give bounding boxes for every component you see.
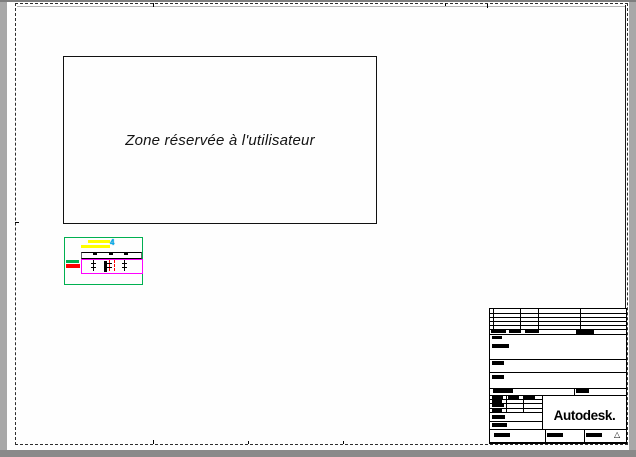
text-placeholder-bar <box>508 396 519 399</box>
autodesk-logo: Autodesk. <box>554 408 616 423</box>
fold-mark <box>153 440 154 444</box>
fold-mark <box>15 222 19 223</box>
grid-line <box>538 309 539 329</box>
grid-line <box>490 412 542 413</box>
revision-triangle-icon: △ <box>614 430 620 440</box>
text-placeholder-bar <box>492 415 505 419</box>
text-placeholder-bar <box>525 330 539 333</box>
text-placeholder-bar <box>494 433 510 437</box>
text-placeholder-bar <box>492 423 507 427</box>
section-line <box>490 372 626 373</box>
beam-symbol <box>81 252 142 259</box>
section-line <box>490 334 626 335</box>
beam-support-square <box>124 252 128 255</box>
center-bar <box>104 261 107 272</box>
fold-mark <box>153 3 154 7</box>
cell-divider <box>574 388 575 395</box>
autodesk-logo-cell: Autodesk. <box>543 395 626 429</box>
fold-mark <box>445 3 446 6</box>
text-placeholder-bar <box>493 389 513 393</box>
beam-support-square <box>93 252 97 255</box>
section-line <box>490 359 626 360</box>
cad-layout-view: Zone réservée à l'utilisateur 4 <box>0 0 636 457</box>
grid-line <box>493 309 494 329</box>
beam-support-square <box>109 252 113 255</box>
text-placeholder-bar <box>492 396 503 399</box>
text-placeholder-bar <box>491 330 506 333</box>
text-placeholder-bar <box>524 396 535 399</box>
grid-line <box>490 313 626 314</box>
cell-divider <box>584 429 585 442</box>
user-zone-box: Zone réservée à l'utilisateur <box>63 56 377 224</box>
grid-line <box>490 421 542 422</box>
cyan-marker-icon: 4 <box>110 238 114 247</box>
slab-section-box <box>81 259 143 274</box>
text-placeholder-bar <box>492 361 504 365</box>
red-dashed-line <box>114 260 115 271</box>
grid-line <box>490 317 626 318</box>
grid-line <box>490 325 626 326</box>
cell-divider <box>545 429 546 442</box>
drawing-preview-viewport: 4 <box>64 237 143 285</box>
text-placeholder-bar <box>492 400 502 403</box>
text-placeholder-bar <box>492 375 504 379</box>
yellow-bar <box>88 240 110 243</box>
user-zone-label: Zone réservée à l'utilisateur <box>125 132 315 149</box>
text-placeholder-bar <box>492 404 504 407</box>
text-placeholder-bar <box>492 344 509 348</box>
workspace-bottom-strip <box>0 450 636 457</box>
text-placeholder-bar <box>547 433 563 437</box>
text-placeholder-bar <box>509 330 521 333</box>
fold-mark <box>248 441 249 444</box>
grid-line <box>580 309 581 329</box>
fold-mark <box>487 4 488 8</box>
rebar-hatch <box>91 260 96 271</box>
grid-line <box>520 309 521 329</box>
workspace-top-strip <box>0 0 636 2</box>
yellow-bar <box>81 245 110 248</box>
grid-line <box>490 321 626 322</box>
frame-top-line <box>17 6 625 7</box>
text-placeholder-bar <box>586 433 602 437</box>
red-dashed-line <box>109 260 110 271</box>
rebar-hatch <box>122 260 127 271</box>
text-placeholder-bar <box>492 409 502 412</box>
text-placeholder-bar <box>576 389 589 393</box>
green-legend-bar <box>66 260 79 263</box>
red-legend-bar <box>66 264 80 268</box>
section-line <box>490 429 626 430</box>
text-placeholder-bar <box>492 336 502 339</box>
fold-mark <box>343 441 344 444</box>
title-block: Autodesk. △ <box>489 308 627 444</box>
